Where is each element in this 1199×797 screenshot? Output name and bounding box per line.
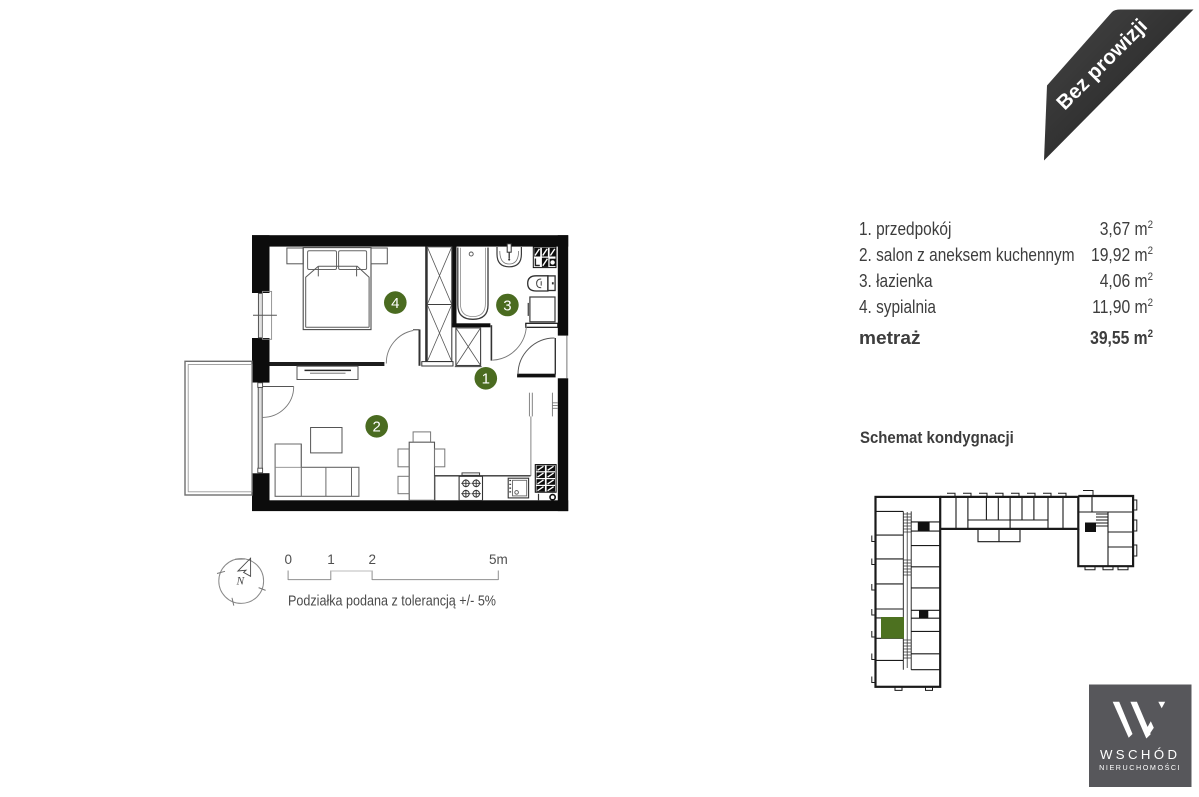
svg-text:2: 2	[373, 419, 381, 436]
svg-text:3: 3	[503, 297, 511, 314]
svg-text:N: N	[236, 576, 246, 588]
svg-text:1: 1	[327, 552, 335, 567]
svg-text:0: 0	[285, 552, 293, 567]
svg-text:5m: 5m	[489, 552, 508, 567]
svg-text:NIERUCHOMOŚCI: NIERUCHOMOŚCI	[1099, 763, 1181, 772]
svg-text:4: 4	[391, 295, 399, 312]
svg-text:2: 2	[369, 552, 377, 567]
svg-text:1: 1	[482, 371, 490, 388]
svg-text:WSCHÓD: WSCHÓD	[1100, 747, 1180, 762]
svg-text:Podziałka podana z tolerancją: Podziałka podana z tolerancją +/- 5%	[288, 593, 496, 610]
